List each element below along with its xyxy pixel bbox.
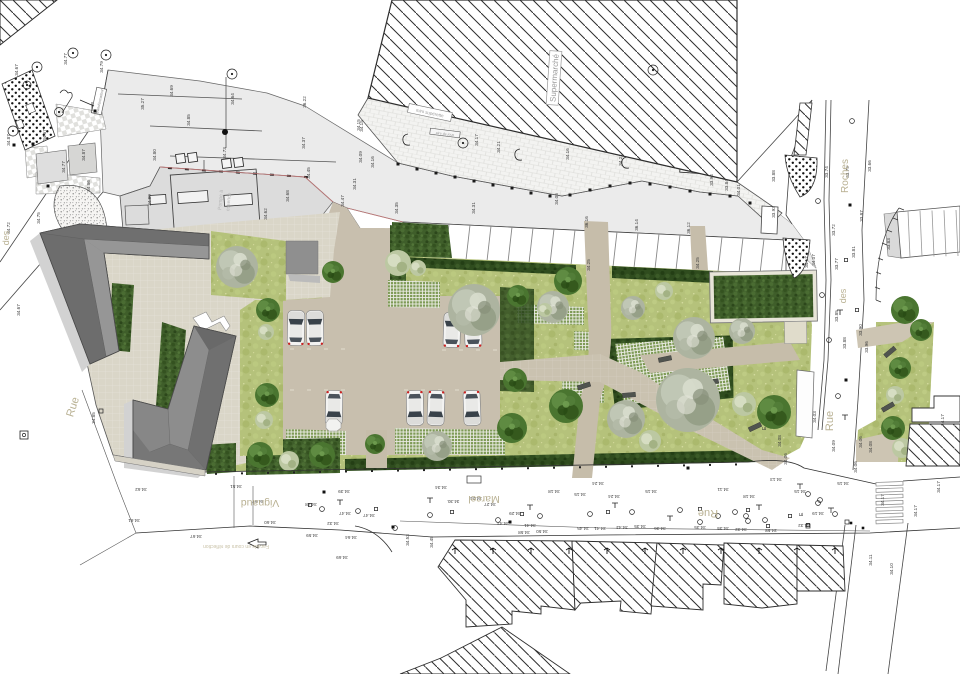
svg-text:Roches: Roches (840, 159, 851, 193)
svg-text:34.51: 34.51 (230, 484, 242, 489)
svg-text:34.77: 34.77 (63, 53, 68, 65)
svg-text:33.96: 33.96 (864, 341, 869, 353)
svg-text:33.72: 33.72 (831, 224, 836, 236)
svg-text:des: des (1, 230, 11, 245)
svg-text:34.87: 34.87 (6, 134, 11, 146)
svg-text:34.09: 34.09 (358, 151, 363, 163)
svg-text:34.42: 34.42 (497, 521, 509, 526)
svg-text:34.42: 34.42 (616, 525, 628, 530)
svg-text:36.16: 36.16 (584, 216, 589, 228)
svg-text:34.17: 34.17 (936, 481, 941, 493)
svg-text:34.24: 34.24 (592, 481, 604, 486)
svg-text:34.21: 34.21 (496, 141, 501, 153)
svg-text:34.67: 34.67 (14, 64, 19, 76)
svg-text:33.88: 33.88 (842, 337, 847, 349)
svg-text:33.85: 33.85 (834, 310, 839, 322)
svg-text:34.64: 34.64 (345, 535, 357, 540)
svg-text:33.74: 33.74 (824, 166, 829, 178)
svg-text:34.35: 34.35 (694, 525, 706, 530)
svg-text:34.39: 34.39 (338, 489, 350, 494)
svg-text:34.37: 34.37 (301, 137, 306, 149)
svg-text:34.17: 34.17 (940, 414, 945, 426)
svg-text:34.45: 34.45 (306, 167, 311, 179)
svg-text:34.08: 34.08 (777, 435, 782, 447)
svg-text:34.60: 34.60 (264, 520, 276, 525)
svg-text:36.12: 36.12 (686, 222, 691, 234)
svg-text:34.29: 34.29 (509, 511, 521, 516)
svg-text:33.81: 33.81 (851, 246, 856, 258)
svg-text:34.34: 34.34 (435, 485, 447, 490)
svg-text:34.03: 34.03 (812, 411, 817, 423)
svg-text:33.90: 33.90 (858, 324, 863, 336)
svg-text:34.69: 34.69 (336, 555, 348, 560)
svg-text:34.69: 34.69 (169, 85, 174, 97)
svg-text:34.15: 34.15 (359, 120, 364, 132)
svg-text:34.10: 34.10 (889, 563, 894, 575)
svg-text:34.67: 34.67 (42, 129, 47, 141)
svg-text:34.77: 34.77 (61, 161, 66, 173)
svg-text:34.75: 34.75 (36, 212, 41, 224)
svg-text:Facade en cours de réflection: Facade en cours de réflection (203, 543, 269, 549)
svg-text:34.59: 34.59 (306, 533, 318, 538)
svg-text:34.58: 34.58 (765, 528, 777, 533)
svg-text:34.36: 34.36 (654, 526, 666, 531)
svg-text:33.87: 33.87 (859, 210, 864, 222)
svg-text:33.77: 33.77 (834, 258, 839, 270)
svg-text:34.79: 34.79 (99, 61, 104, 73)
svg-text:33.66: 33.66 (867, 160, 872, 172)
svg-text:34.41: 34.41 (524, 523, 536, 528)
svg-text:34.35: 34.35 (634, 524, 646, 529)
svg-text:34.07: 34.07 (811, 254, 816, 266)
svg-text:34.17: 34.17 (913, 505, 918, 517)
svg-text:34.89: 34.89 (147, 194, 152, 206)
svg-text:33.93: 33.93 (771, 206, 776, 218)
svg-text:Rue: Rue (824, 411, 836, 431)
svg-text:34.67: 34.67 (16, 304, 21, 316)
svg-text:34.32: 34.32 (327, 521, 339, 526)
svg-text:34.53: 34.53 (405, 534, 410, 546)
svg-text:36.22: 36.22 (302, 96, 307, 108)
svg-text:34.68: 34.68 (285, 190, 290, 202)
svg-text:34.06: 34.06 (853, 461, 858, 473)
svg-text:34.15: 34.15 (574, 492, 586, 497)
svg-text:34.17: 34.17 (880, 494, 885, 506)
svg-text:34.58: 34.58 (518, 530, 530, 535)
svg-text:34.09: 34.09 (831, 440, 836, 452)
svg-text:34.18: 34.18 (548, 489, 560, 494)
svg-text:34.15: 34.15 (794, 489, 806, 494)
svg-text:34.62: 34.62 (135, 487, 147, 492)
svg-text:34.47: 34.47 (340, 195, 345, 207)
svg-text:34.19: 34.19 (812, 511, 824, 516)
svg-text:34.87: 34.87 (81, 149, 86, 161)
svg-text:34.47: 34.47 (339, 511, 351, 516)
svg-text:Vignaud: Vignaud (241, 497, 280, 509)
svg-text:34.32: 34.32 (735, 527, 747, 532)
svg-text:34.67: 34.67 (190, 534, 202, 539)
svg-text:36.14: 36.14 (634, 219, 639, 231)
svg-text:34.73: 34.73 (222, 147, 227, 159)
svg-text:34.32: 34.32 (798, 523, 810, 528)
svg-text:34.11: 34.11 (868, 554, 873, 566)
svg-text:34.25: 34.25 (586, 259, 591, 271)
svg-text:34.85: 34.85 (186, 114, 191, 126)
svg-text:33.84: 33.84 (724, 179, 729, 191)
svg-text:34.17: 34.17 (804, 256, 809, 268)
svg-text:34.25: 34.25 (695, 257, 700, 269)
svg-text:34.62: 34.62 (263, 208, 268, 220)
svg-text:34.08: 34.08 (868, 441, 873, 453)
svg-text:34.48: 34.48 (305, 502, 317, 507)
svg-text:34.16: 34.16 (370, 156, 375, 168)
svg-text:34.06: 34.06 (783, 453, 788, 465)
svg-text:34.06: 34.06 (554, 193, 559, 205)
svg-text:34.21: 34.21 (618, 154, 623, 166)
svg-text:34.86: 34.86 (86, 180, 91, 192)
svg-text:34.45: 34.45 (429, 536, 434, 548)
svg-text:Marcel: Marcel (468, 493, 500, 505)
svg-text:34.18: 34.18 (743, 494, 755, 499)
svg-text:33.83: 33.83 (886, 238, 891, 250)
svg-text:34.31: 34.31 (352, 178, 357, 190)
svg-text:34.16: 34.16 (565, 148, 570, 160)
svg-text:des: des (838, 288, 848, 303)
svg-text:34.11: 34.11 (717, 487, 729, 492)
svg-text:34.24: 34.24 (608, 494, 620, 499)
svg-text:34.47: 34.47 (363, 513, 375, 518)
svg-text:34.17: 34.17 (474, 134, 479, 146)
svg-text:33.94: 33.94 (709, 174, 714, 186)
svg-text:34.64: 34.64 (230, 93, 235, 105)
svg-text:34.31: 34.31 (471, 202, 476, 214)
svg-text:34.80: 34.80 (152, 149, 157, 161)
svg-text:34.61: 34.61 (128, 518, 140, 523)
svg-text:34.15: 34.15 (645, 489, 657, 494)
svg-text:34.35: 34.35 (394, 202, 399, 214)
svg-text:34.50: 34.50 (536, 529, 548, 534)
svg-text:33.88: 33.88 (771, 170, 776, 182)
svg-text:34.45: 34.45 (577, 526, 589, 531)
svg-text:34.01: 34.01 (736, 184, 741, 196)
svg-text:34.30.: 34.30. (447, 499, 460, 504)
svg-text:34.15: 34.15 (837, 481, 849, 486)
svg-text:34.13: 34.13 (770, 477, 782, 482)
svg-text:34.85: 34.85 (91, 412, 96, 424)
svg-text:35.27: 35.27 (140, 98, 145, 110)
svg-text:34.06: 34.06 (858, 436, 863, 448)
svg-text:34.41: 34.41 (594, 526, 606, 531)
svg-text:Rue: Rue (698, 507, 718, 519)
svg-text:34.35: 34.35 (717, 526, 729, 531)
